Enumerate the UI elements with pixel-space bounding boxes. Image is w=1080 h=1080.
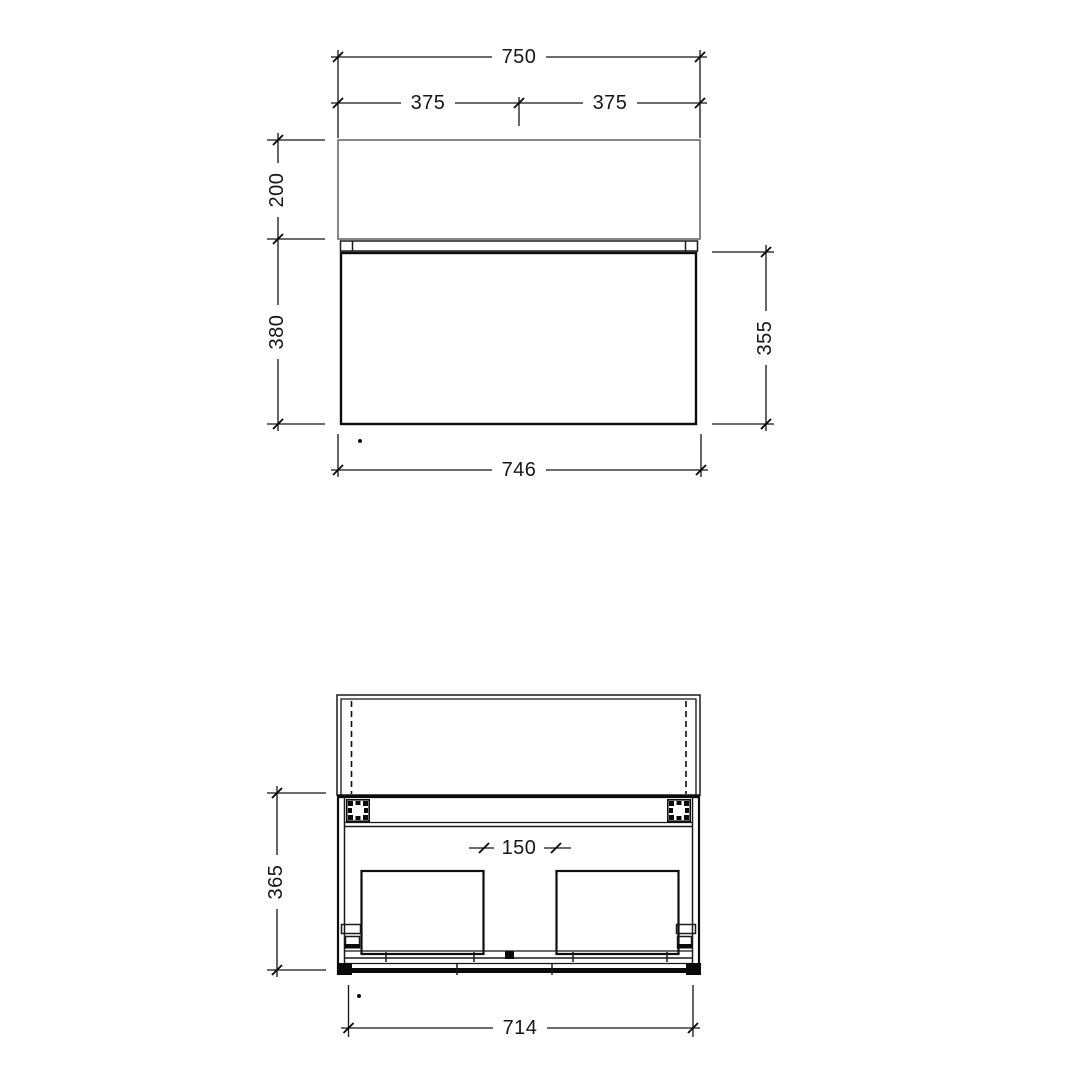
vanity-dimension-drawing: 750 375 375 bbox=[0, 0, 1080, 1080]
dim-overall-width-value: 750 bbox=[502, 46, 537, 68]
basin-outline bbox=[338, 140, 700, 239]
dim-center-gap-value: 150 bbox=[502, 837, 537, 859]
dim-internal-width-value: 714 bbox=[503, 1017, 538, 1039]
plan-section-view: 150 bbox=[265, 695, 701, 1039]
dim-bottom-width: 746 bbox=[331, 434, 708, 481]
reference-dot-front bbox=[358, 439, 362, 443]
reference-dot-section bbox=[357, 994, 361, 998]
front-elevation-view: 750 375 375 bbox=[266, 46, 776, 481]
top-rail-band bbox=[341, 241, 698, 251]
dim-left-half-value: 375 bbox=[411, 92, 446, 114]
cabinet-outline bbox=[341, 253, 696, 424]
rail-band-section bbox=[337, 797, 700, 827]
dim-internal-height: 365 bbox=[265, 786, 326, 977]
dim-internal-height-value: 365 bbox=[265, 865, 287, 900]
dim-top-section-height-value: 200 bbox=[266, 173, 288, 208]
slide-profile-left bbox=[347, 800, 369, 821]
slide-profile-right bbox=[668, 800, 690, 821]
dim-cabinet-height-value: 380 bbox=[266, 315, 288, 350]
dim-center-gap: 150 bbox=[469, 837, 571, 859]
dim-right-half-value: 375 bbox=[593, 92, 628, 114]
drawer-box-right bbox=[557, 871, 679, 954]
dim-bottom-width-value: 746 bbox=[502, 459, 537, 481]
back-panel bbox=[337, 695, 700, 795]
dim-drawer-front-height-value: 355 bbox=[754, 321, 776, 356]
drawer-box-left bbox=[362, 871, 484, 954]
dim-left-heights: 200 380 bbox=[266, 133, 325, 431]
dim-drawer-front-height: 355 bbox=[712, 245, 776, 431]
technical-drawing-page: 750 375 375 bbox=[0, 0, 1080, 1080]
dim-internal-width: 714 bbox=[341, 985, 700, 1039]
dim-overall-width: 750 bbox=[331, 46, 707, 68]
